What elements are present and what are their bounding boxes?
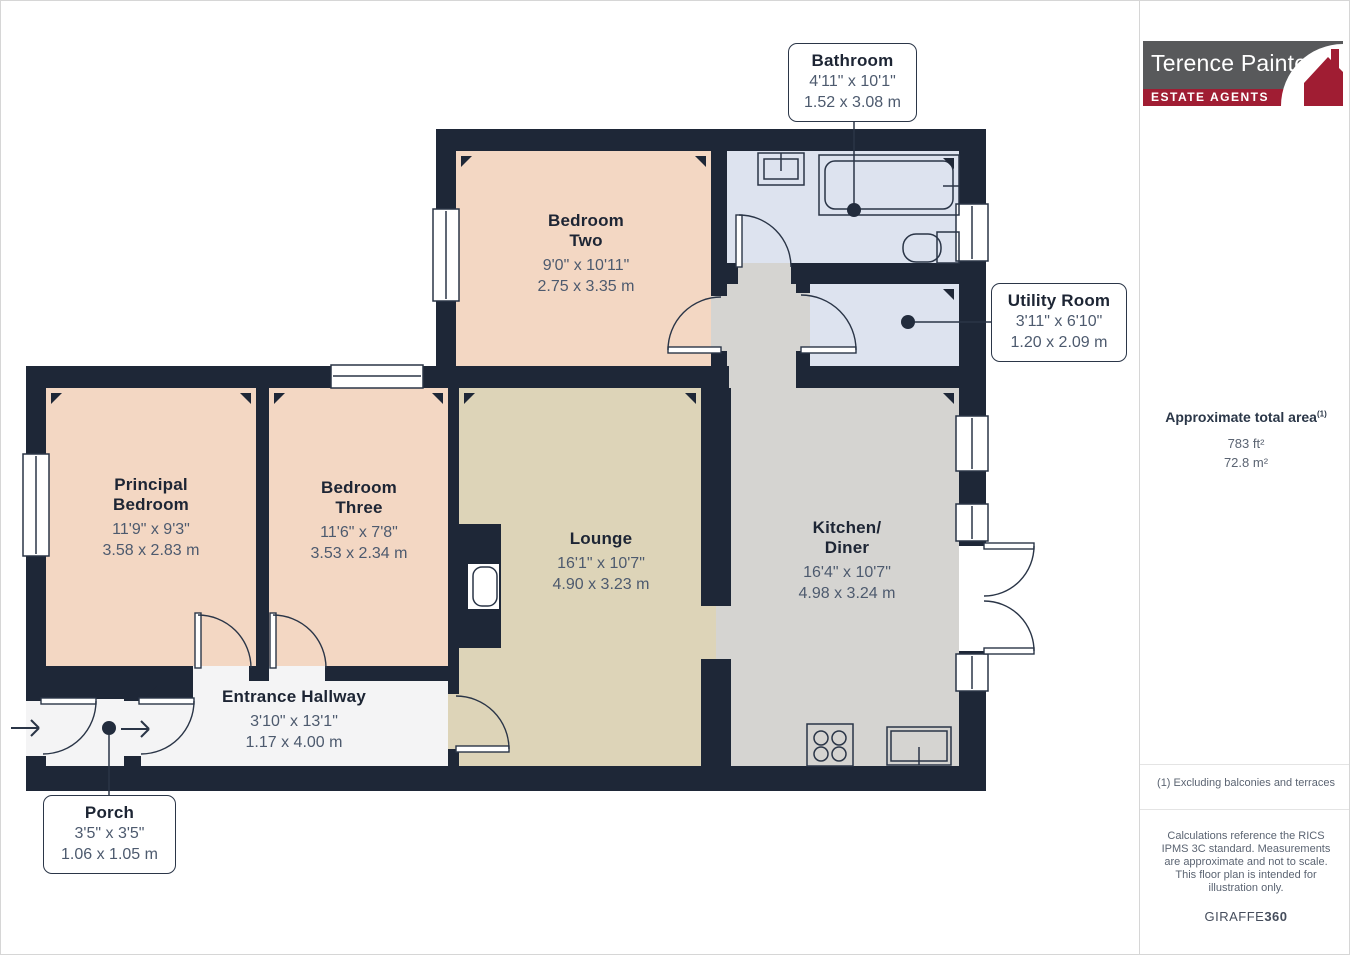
room-dim-metric: 1.52 x 3.08 m: [797, 92, 908, 113]
divider: [1140, 809, 1350, 810]
total-area-block: Approximate total area(1) 783 ft² 72.8 m…: [1140, 409, 1350, 472]
total-area-title-text: Approximate total area: [1165, 409, 1317, 425]
giraffe360-brand-bold: 360: [1264, 909, 1287, 924]
room-name: Bathroom: [797, 51, 908, 71]
callout-porch: Porch 3'5" x 3'5" 1.06 x 1.05 m: [43, 795, 176, 874]
callout-utility-room: Utility Room 3'11" x 6'10" 1.20 x 2.09 m: [991, 283, 1127, 362]
total-area-imperial: 783 ft²: [1140, 434, 1350, 453]
room-dim-metric: 1.06 x 1.05 m: [52, 844, 167, 865]
giraffe360-brand: GIRAFFE360: [1140, 909, 1350, 924]
agency-logo: Terence Painter ESTATE AGENTS: [1143, 41, 1343, 106]
callout-bathroom: Bathroom 4'11" x 10'1" 1.52 x 3.08 m: [788, 43, 917, 122]
total-area-title: Approximate total area(1): [1140, 409, 1350, 425]
footnote-marker: (1): [1317, 409, 1327, 418]
divider: [1140, 764, 1350, 765]
footnote-text: (1) Excluding balconies and terraces: [1140, 777, 1350, 789]
sidebar: Terence Painter ESTATE AGENTS Approximat…: [1139, 1, 1350, 955]
disclaimer-text: Calculations reference the RICS IPMS 3C …: [1161, 830, 1331, 895]
giraffe360-brand-regular: GIRAFFE: [1204, 909, 1264, 924]
room-name: Porch: [52, 803, 167, 823]
agency-tagline: ESTATE AGENTS: [1151, 90, 1269, 104]
total-area-metric: 72.8 m²: [1140, 453, 1350, 472]
room-dim-metric: 1.20 x 2.09 m: [1000, 332, 1118, 353]
room-dim-imperial: 4'11" x 10'1": [797, 71, 908, 92]
floor-plan-page: Bedroom Two 9'0" x 10'11" 2.75 x 3.35 m …: [0, 0, 1350, 955]
house-icon: [1258, 41, 1343, 106]
room-name: Utility Room: [1000, 291, 1118, 311]
room-dim-imperial: 3'5" x 3'5": [52, 823, 167, 844]
fireplace: [468, 564, 499, 609]
room-dim-imperial: 3'11" x 6'10": [1000, 311, 1118, 332]
